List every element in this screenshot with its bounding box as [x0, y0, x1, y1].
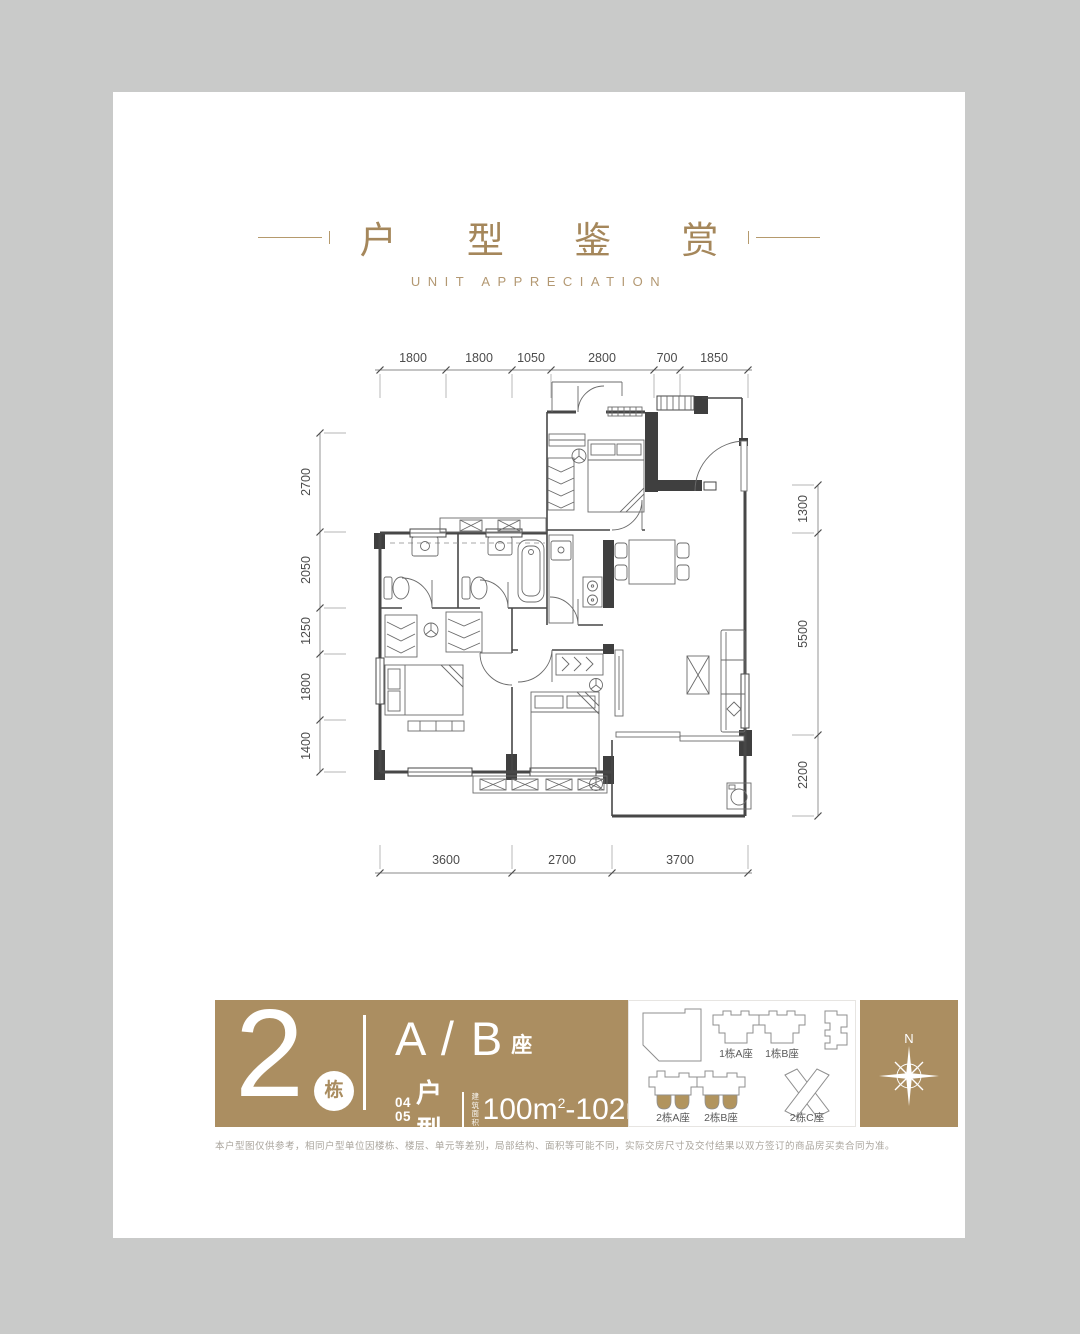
- dim-bottom-0: 3600: [432, 853, 460, 867]
- building-number: 2: [235, 989, 304, 1119]
- type-label: 户型: [416, 1073, 450, 1147]
- title-left-ornament: [258, 231, 330, 244]
- plan-windows: [376, 482, 749, 776]
- dim-top-2: 1050: [517, 351, 545, 365]
- dimensions-bottom: 3600 2700 3700: [375, 845, 752, 877]
- building-2c-footprint: [785, 1069, 829, 1117]
- building-1-footprints: [713, 1011, 805, 1043]
- plan-walls-solid: [374, 396, 752, 784]
- plan-ac-bay: [473, 776, 607, 793]
- plan-bedroom-1: [385, 612, 482, 731]
- dim-bottom-2: 3700: [666, 853, 694, 867]
- compass-north-label: N: [904, 1031, 913, 1046]
- building-footprint-small: [825, 1011, 847, 1049]
- podium-outline: [643, 1009, 701, 1061]
- poster-card: 户 型 鉴 赏 UNIT APPRECIATION 1800 1800: [113, 92, 965, 1238]
- dim-top-1: 1800: [465, 351, 493, 365]
- plan-kitchen: [549, 535, 602, 623]
- dim-top-3: 2800: [588, 351, 616, 365]
- dim-left-0: 2700: [299, 468, 313, 496]
- building-2ab-footprints: [649, 1071, 745, 1109]
- dim-right-1: 5500: [796, 620, 810, 648]
- dim-left-2: 1250: [299, 617, 313, 645]
- site-key-panel: 1栋A座 1栋B座 2栋A座 2栋B座 2栋C座: [628, 1000, 856, 1127]
- compass-rose-icon: [879, 1046, 939, 1106]
- page-title: 户 型 鉴 赏: [360, 210, 749, 264]
- floorplan: 1800 1800 1050 2800 700 1850 2700 2050 1…: [290, 340, 860, 890]
- panel-divider: [363, 1015, 366, 1110]
- building-unit-badge: 栋: [314, 1071, 354, 1111]
- plan-living-dining: [615, 540, 745, 732]
- plan-master-bedroom: [548, 407, 644, 512]
- title-right-ornament: [748, 231, 820, 244]
- area-divider: [462, 1092, 464, 1128]
- type-no-top: 04: [395, 1095, 411, 1110]
- type-numbers: 04 05: [395, 1096, 411, 1125]
- floorplan-drawing: 1800 1800 1050 2800 700 1850 2700 2050 1…: [290, 340, 860, 890]
- dimensions-top: 1800 1800 1050 2800 700 1850: [375, 351, 752, 398]
- dim-left-3: 1800: [299, 673, 313, 701]
- dimensions-right: 1300 5500 2200: [792, 482, 822, 820]
- key-label-2b: 2栋B座: [704, 1111, 738, 1124]
- block-suffix: 座: [511, 1029, 532, 1059]
- disclaimer-text: 本户型图仅供参考，相同户型单位因楼栋、楼层、单元等差别，局部结构、面积等可能不同…: [215, 1138, 965, 1152]
- dimensions-left: 2700 2050 1250 1800 1400: [299, 430, 346, 776]
- dim-right-2: 2200: [796, 761, 810, 789]
- dim-top-4: 700: [657, 351, 678, 365]
- dim-left-4: 1400: [299, 732, 313, 760]
- dim-top-0: 1800: [399, 351, 427, 365]
- plan-balcony: [727, 783, 751, 809]
- page-subtitle: UNIT APPRECIATION: [113, 274, 965, 289]
- dim-bottom-1: 2700: [548, 853, 576, 867]
- type-no-bottom: 05: [395, 1109, 411, 1124]
- key-label-1b: 1栋B座: [765, 1047, 799, 1060]
- block-title: A / B: [395, 1015, 504, 1062]
- unit-info-panel: 2 栋 A / B 座 04 05 户型 建筑面积 100m2-102m2: [215, 1000, 628, 1127]
- site-key-drawing: 1栋A座 1栋B座 2栋A座 2栋B座 2栋C座: [629, 1001, 855, 1126]
- key-label-2a: 2栋A座: [656, 1111, 690, 1124]
- plan-doors: [390, 382, 747, 741]
- compass-panel: N: [860, 1000, 958, 1127]
- key-label-1a: 1栋A座: [719, 1047, 753, 1060]
- dim-left-1: 2050: [299, 556, 313, 584]
- compass-drawing: N: [860, 1000, 958, 1127]
- dim-right-0: 1300: [796, 495, 810, 523]
- plan-walls-lines: [380, 396, 745, 816]
- area-label: 建筑面积: [472, 1093, 482, 1127]
- key-label-2c: 2栋C座: [790, 1111, 824, 1124]
- dim-top-5: 1850: [700, 351, 728, 365]
- header: 户 型 鉴 赏 UNIT APPRECIATION: [113, 210, 965, 289]
